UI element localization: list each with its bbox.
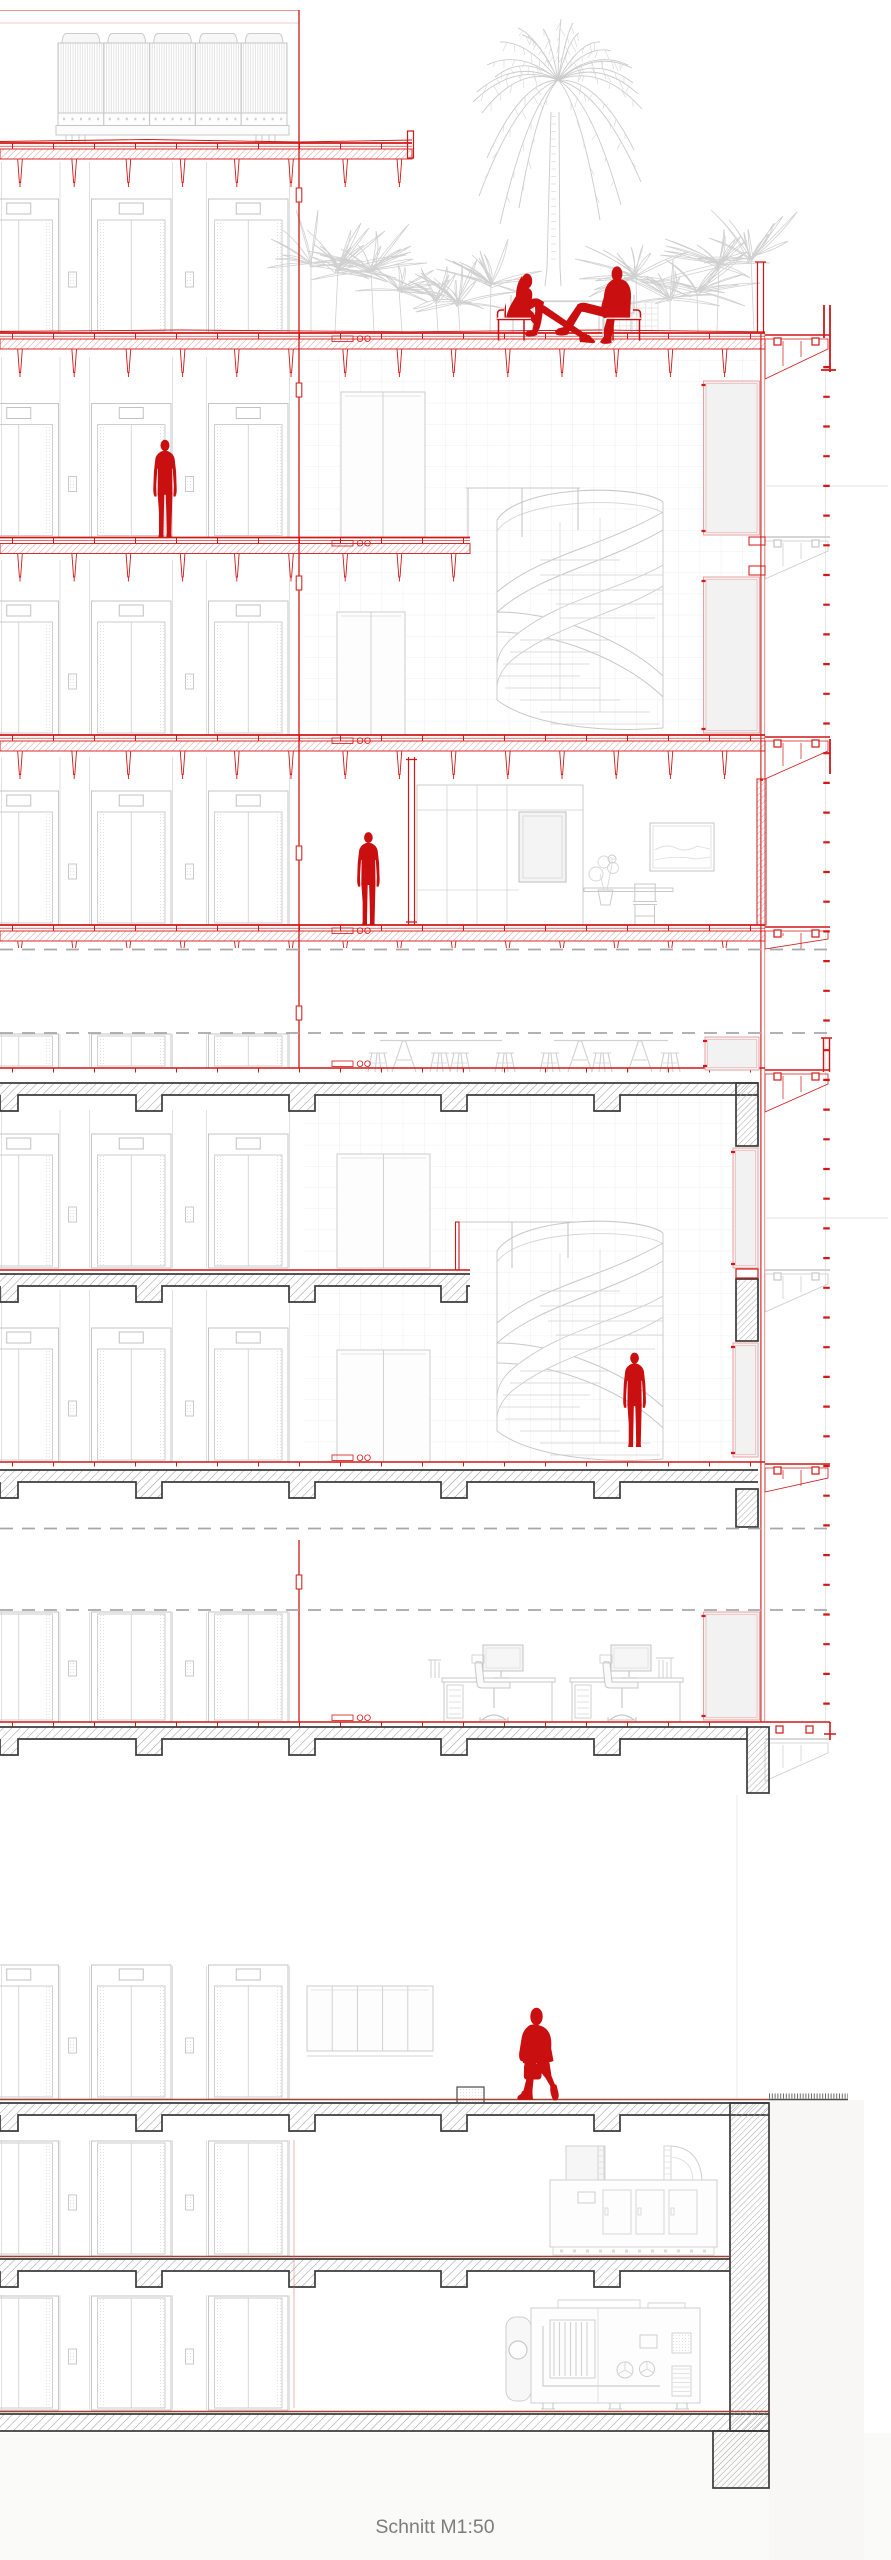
svg-text:Schnitt M1:50: Schnitt M1:50 [375, 2516, 494, 2538]
